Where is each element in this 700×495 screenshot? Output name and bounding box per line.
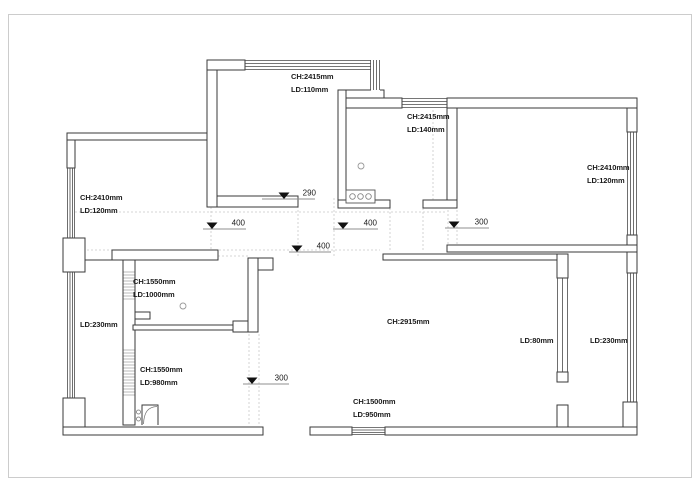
level-marker-triangle-icon [292, 246, 303, 253]
level-marker-value: 300 [275, 374, 289, 383]
floor-plan-svg: 290400400300400300 [0, 0, 700, 495]
level-marker-triangle-icon [449, 222, 460, 229]
level-marker: 400 [289, 242, 331, 253]
level-marker-value: 300 [475, 218, 489, 227]
level-marker-value: 290 [303, 189, 317, 198]
door-swing-icon [137, 405, 159, 425]
level-marker-value: 400 [317, 242, 331, 251]
level-marker: 400 [203, 219, 246, 230]
level-marker: 300 [243, 374, 289, 385]
level-marker-triangle-icon [338, 223, 349, 230]
counter-with-burners-icon [346, 190, 375, 203]
level-marker-value: 400 [232, 219, 246, 228]
walls [63, 60, 637, 435]
level-marker: 400 [333, 219, 378, 230]
floor-plan-page: 290400400300400300 CH:2415mmLD:110mmCH:2… [0, 0, 700, 495]
level-marker-triangle-icon [247, 378, 258, 385]
level-marker-value: 400 [364, 219, 378, 228]
level-marker-triangle-icon [207, 223, 218, 230]
level-marker: 300 [445, 218, 489, 229]
dimension-markers: 290400400300400300 [203, 189, 489, 385]
